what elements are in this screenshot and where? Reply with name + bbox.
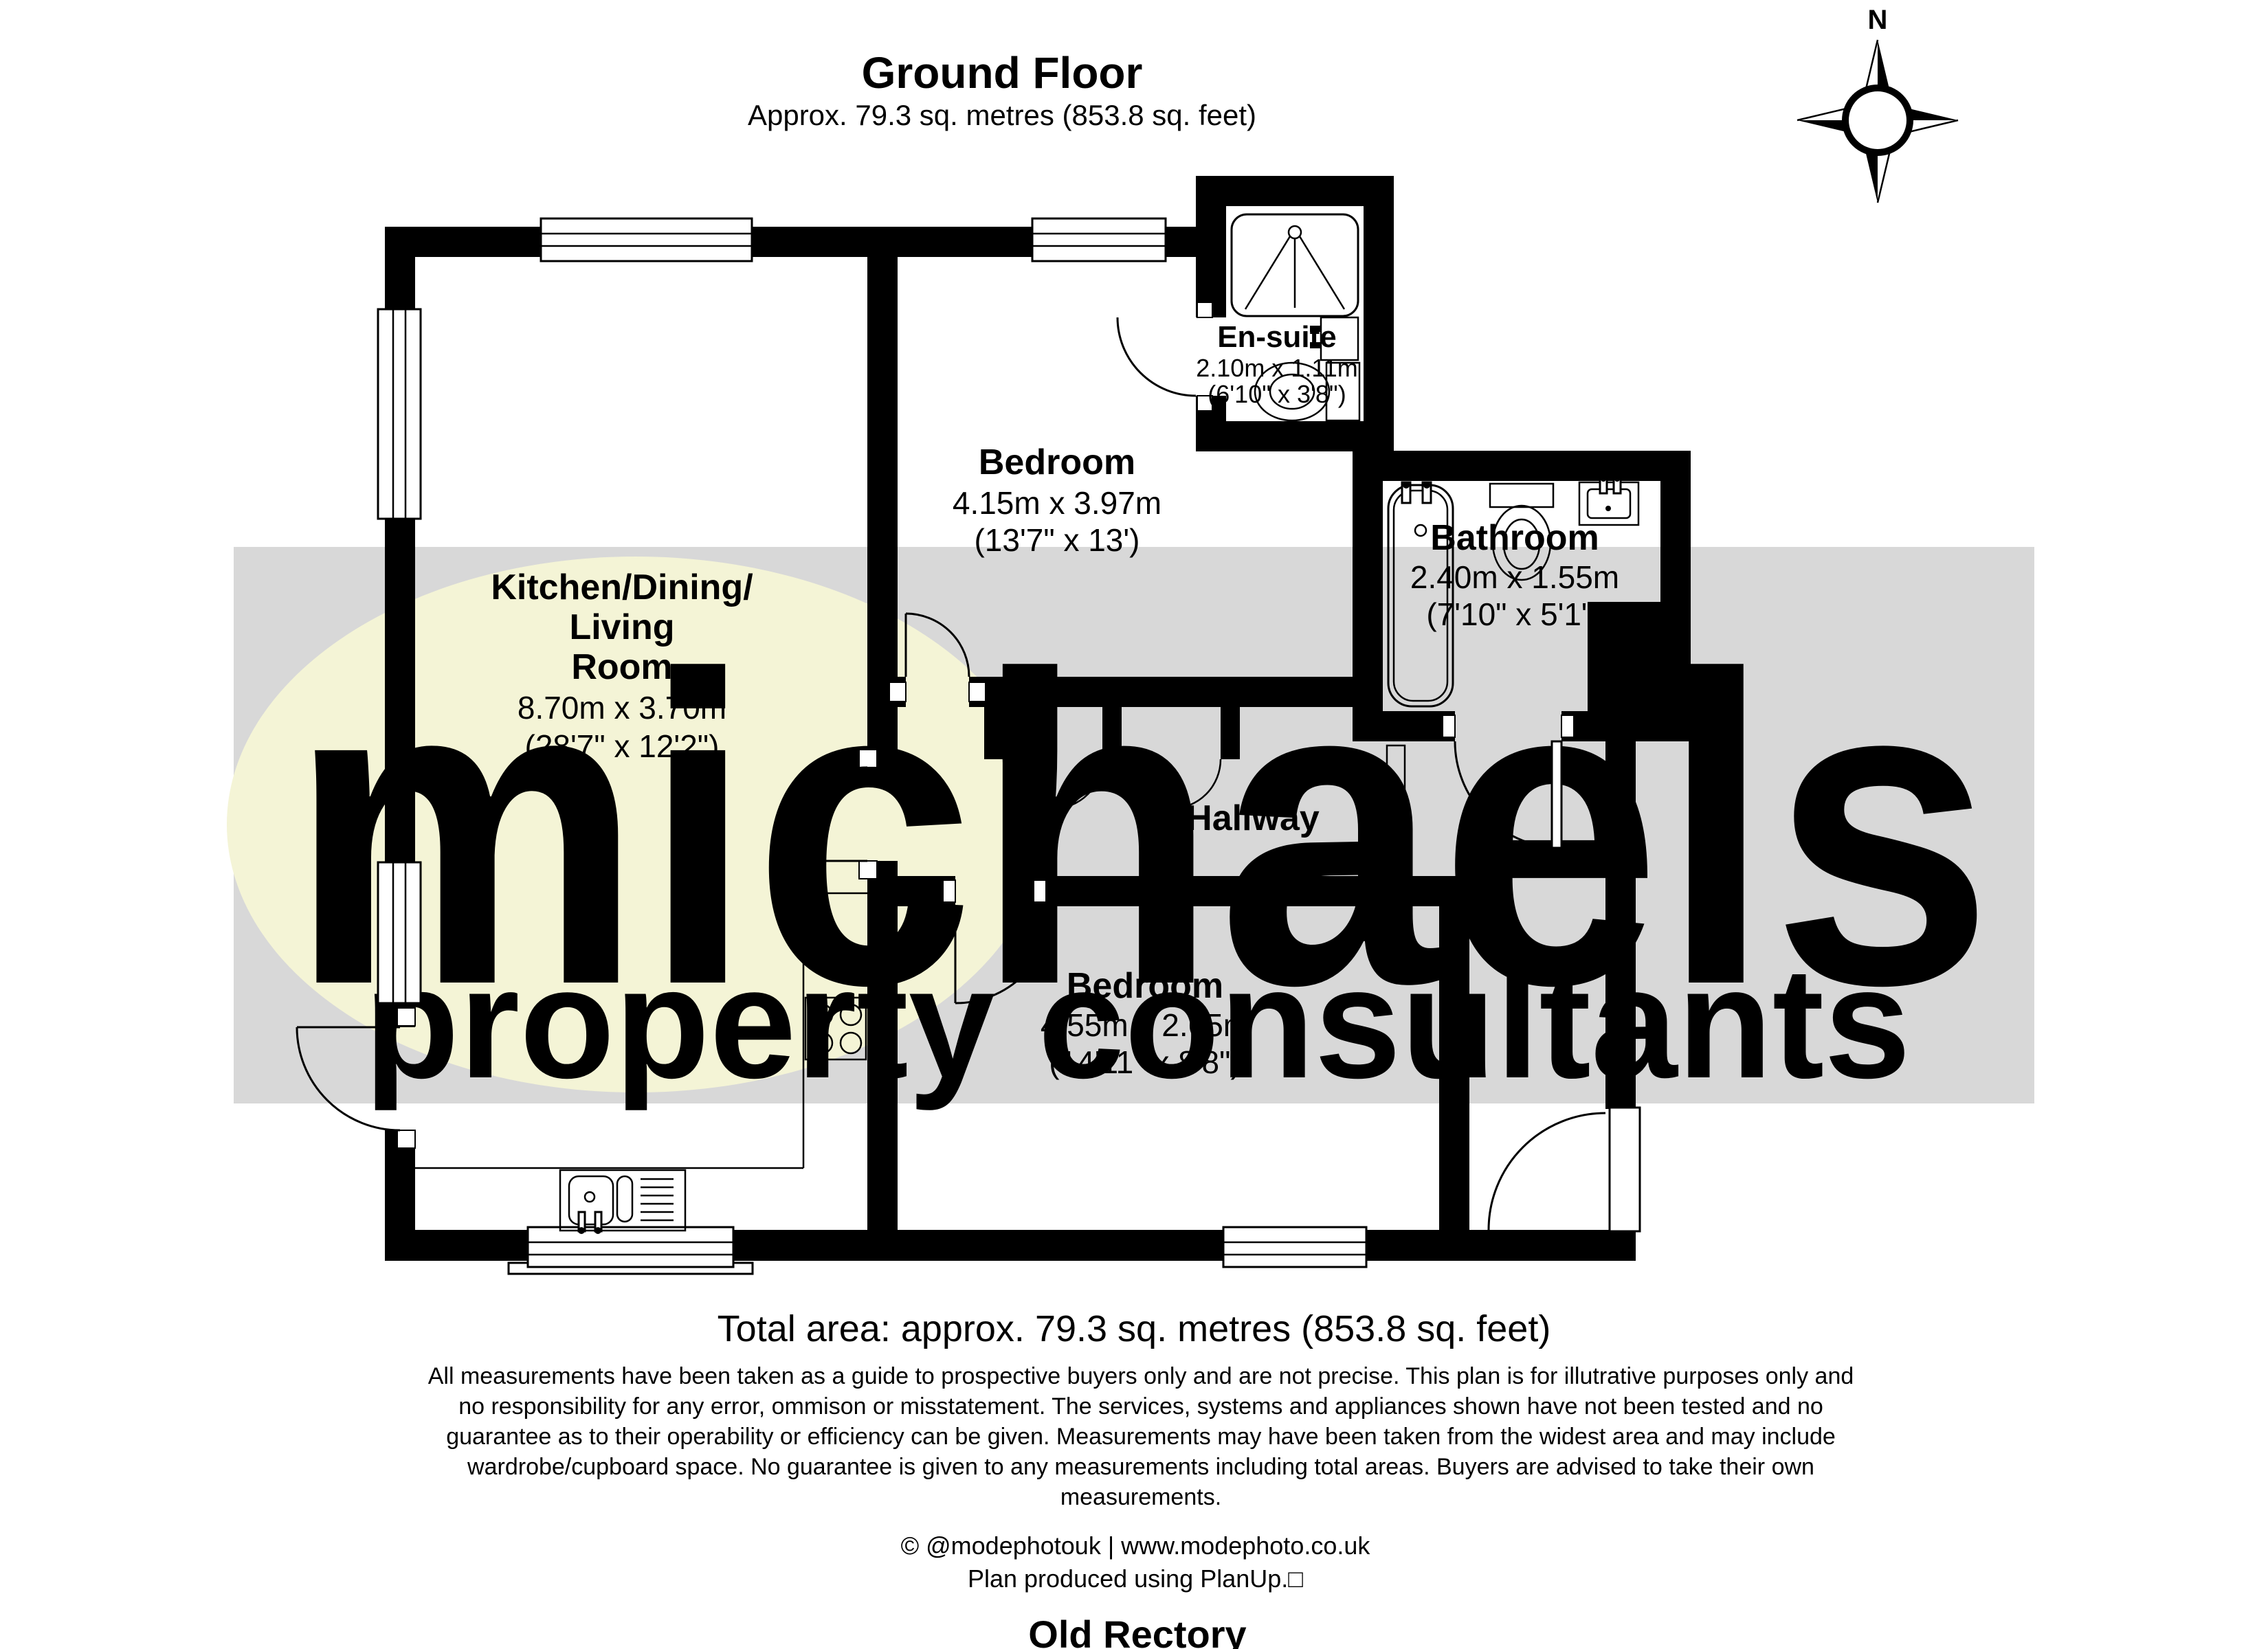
- wall-bottom-3: [1366, 1230, 1636, 1261]
- property-name: Old Rectory: [1028, 1613, 1246, 1649]
- page-subtitle: Approx. 79.3 sq. metres (853.8 sq. feet): [748, 99, 1256, 131]
- kitchen-name-line2: Living: [569, 607, 674, 647]
- wall-bathroom-bottom-1: [1353, 711, 1455, 741]
- disclaimer-line-2: no responsibility for any error, ommison…: [458, 1393, 1823, 1420]
- wall-hallway-bottom-2: [1034, 876, 1469, 906]
- page-title: Ground Floor: [862, 48, 1143, 98]
- bedroom1-name: Bedroom: [979, 442, 1135, 482]
- compass-icon: N: [1797, 5, 1958, 203]
- wall-left-2: [385, 519, 415, 862]
- bedroom2-dims-imperial: (14'11" x 8'8"): [1049, 1044, 1241, 1080]
- wall-hallway-top-2: [969, 677, 1383, 707]
- wall-cupboard-stub-2: [1102, 707, 1122, 759]
- label-bedroom2: Bedroom 4.55m x 2.65m (14'11" x 8'8"): [1041, 966, 1249, 1080]
- bathroom-name: Bathroom: [1430, 518, 1599, 558]
- bedroom2-dims-metric: 4.55m x 2.65m: [1041, 1007, 1249, 1043]
- wall-ensuite-left-upper: [1196, 206, 1226, 317]
- wall-bedroom2-right: [1439, 906, 1469, 1230]
- kitchen-sink-icon: [560, 1170, 685, 1234]
- bedroom2-name: Bedroom: [1067, 966, 1223, 1006]
- ensuite-name: En-suite: [1217, 320, 1337, 354]
- wall-kitchen-bedroom1: [867, 257, 898, 677]
- bathroom-dims-metric: 2.40m x 1.55m: [1410, 559, 1619, 595]
- label-bathroom: Bathroom 2.40m x 1.55m (7'10" x 5'1"): [1410, 518, 1619, 632]
- disclaimer-line-5: measurements.: [1060, 1484, 1221, 1510]
- ensuite-dims-metric: 2.10m x 1.11m: [1196, 354, 1357, 382]
- wall-bottom-2: [733, 1230, 1223, 1261]
- floorplan-canvas: michaels property consultants Ground Flo…: [0, 0, 2268, 1649]
- wall-cupboard-stub-1: [984, 707, 1003, 759]
- label-bedroom1: Bedroom 4.15m x 3.97m (13'7" x 13'): [953, 442, 1161, 558]
- produced-with-text: Plan produced using PlanUp.□: [968, 1564, 1303, 1593]
- bathroom-dims-imperial: (7'10" x 5'1"): [1426, 596, 1603, 632]
- bedroom1-dims-metric: 4.15m x 3.97m: [953, 485, 1161, 521]
- total-area-text: Total area: approx. 79.3 sq. metres (853…: [718, 1308, 1551, 1349]
- wall-bottom-1: [385, 1230, 528, 1261]
- ensuite-dims-imperial: (6'10" x 3'8"): [1208, 380, 1346, 408]
- disclaimer-line-1: All measurements have been taken as a gu…: [428, 1363, 1854, 1389]
- bedroom1-dims-imperial: (13'7" x 13'): [974, 522, 1139, 558]
- window-top-kitchen: [541, 218, 752, 261]
- window-left-upper: [378, 309, 421, 519]
- compass-north-label: N: [1868, 5, 1888, 35]
- kitchen-dims-imperial: (28'7" x 12'2"): [525, 728, 720, 764]
- door-entrance-exterior: [1489, 1108, 1640, 1231]
- wall-ensuite-bottom: [1196, 421, 1383, 451]
- window-bottom-bedroom2: [1223, 1227, 1366, 1267]
- footer: Total area: approx. 79.3 sq. metres (853…: [428, 1308, 1854, 1649]
- label-ensuite: En-suite 2.10m x 1.11m (6'10" x 3'8"): [1196, 320, 1357, 408]
- wall-bathroom-top: [1383, 451, 1691, 481]
- shower-icon: [1232, 214, 1358, 316]
- hallway-name: Hallway: [1186, 798, 1320, 838]
- wall-top-2: [752, 227, 1032, 257]
- kitchen-name-line3: Room: [571, 647, 672, 687]
- kitchen-name-line1: Kitchen/Dining/: [491, 568, 753, 607]
- wall-cupboard-stub-3: [1221, 707, 1240, 759]
- wall-vestibule-right: [1605, 741, 1636, 1109]
- window-top-bedroom1: [1032, 218, 1166, 261]
- disclaimer-line-3: guarantee as to their operability or eff…: [446, 1424, 1836, 1450]
- floorplan-page: michaels property consultants Ground Flo…: [0, 0, 2268, 1649]
- window-bottom-kitchen: [509, 1227, 753, 1274]
- compass-circle: [1845, 88, 1910, 153]
- kitchen-dims-metric: 8.70m x 3.70m: [518, 690, 726, 726]
- window-left-lower: [378, 862, 421, 1003]
- disclaimer-line-4: wardrobe/cupboard space. No guarantee is…: [467, 1454, 1814, 1480]
- wall-kitchen-east-lower: [867, 861, 898, 1230]
- wall-top-1: [385, 227, 541, 257]
- credit-text: © @modephotouk | www.modephoto.co.uk: [901, 1532, 1371, 1560]
- header: Ground Floor Approx. 79.3 sq. metres (85…: [748, 48, 1256, 131]
